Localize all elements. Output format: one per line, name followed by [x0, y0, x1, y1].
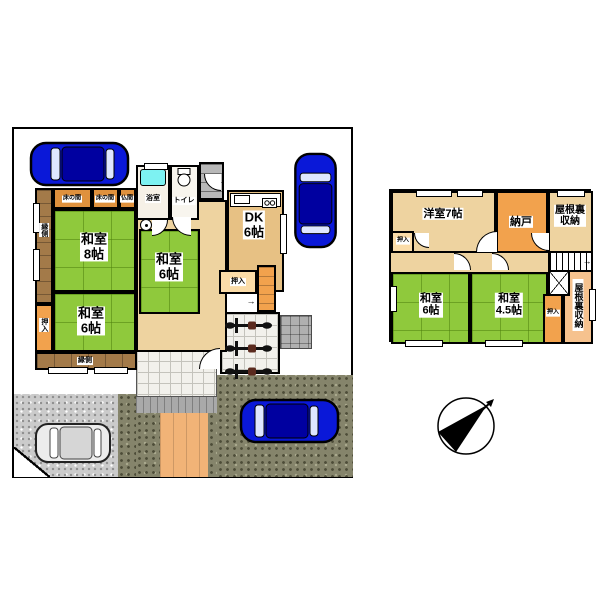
room-label: トイレ	[173, 197, 196, 205]
window	[94, 367, 128, 374]
room-name: 屋根裏	[555, 205, 585, 216]
gravel-dark-strip	[136, 413, 160, 477]
stairs-up-1f	[257, 265, 276, 312]
window	[33, 249, 40, 281]
door-arc	[454, 253, 471, 270]
room-name: 和室	[498, 293, 520, 305]
bicycle-icon	[224, 340, 274, 358]
window	[589, 289, 596, 321]
room-size: 6帖	[244, 224, 264, 239]
room-label: 押入	[546, 310, 560, 317]
gravel-dark-strip	[208, 413, 217, 477]
floor-plan-canvas: 床の間 床の間 仏間 縁側 押入 和室 8帖 和室 6帖 和室 6帖 浴室 トイ…	[0, 0, 600, 600]
car-icon	[34, 421, 112, 465]
window	[48, 367, 88, 374]
room-name: 和室	[81, 231, 107, 246]
stone-steps	[280, 315, 312, 349]
room-label: 押入	[396, 238, 410, 245]
stairs-direction-arrow: →	[582, 256, 593, 266]
room-label: 和室 4.5帖	[495, 293, 523, 318]
room-name: 和室	[78, 305, 104, 320]
room-label: 和室 6帖	[155, 252, 183, 281]
room-label: 納戸	[509, 216, 533, 228]
window	[280, 214, 287, 254]
room-label: 縁側	[39, 223, 49, 237]
door-arc	[492, 253, 509, 270]
window	[457, 190, 483, 197]
room-label: 押入	[230, 278, 246, 286]
car-icon	[239, 395, 340, 447]
room-size: 6帖	[422, 305, 439, 317]
room-label: 和室 6帖	[77, 306, 105, 335]
floor-plan-2f: 洋室7帖 納戸 屋根裏 収納 押入 和室 6帖 和室 4.5帖 押入 屋根裏収納…	[389, 189, 591, 342]
car-icon	[29, 140, 130, 188]
window	[390, 286, 397, 312]
room-label: 浴室	[145, 195, 161, 203]
room-name: 和室	[420, 293, 442, 305]
bicycle-icon	[224, 317, 274, 335]
room-label: 床の間	[95, 196, 115, 203]
room-size: 6帖	[159, 266, 179, 281]
washbasin-icon	[140, 219, 152, 231]
room-label: 和室 6帖	[419, 293, 443, 318]
room-size: 4.5帖	[496, 305, 522, 317]
kitchen-sink-icon	[234, 195, 250, 204]
window	[557, 190, 585, 197]
room-label: 屋根裏収納	[573, 279, 584, 331]
bathtub-icon	[140, 169, 166, 186]
room-label: 和室 8帖	[80, 232, 108, 261]
room-name: 和室	[156, 251, 182, 266]
room-label: 床の間	[62, 196, 82, 203]
site-plan-1f: 床の間 床の間 仏間 縁側 押入 和室 8帖 和室 6帖 和室 6帖 浴室 トイ…	[12, 127, 353, 478]
room-label: 押入	[39, 318, 49, 332]
room-label: 縁側	[77, 357, 93, 365]
bicycle-icon	[224, 363, 274, 381]
gravel-dark-strip	[118, 394, 138, 477]
car-icon	[291, 152, 340, 249]
stairs-direction-arrow: →	[246, 296, 257, 306]
room-label: DK 6帖	[243, 210, 265, 239]
room-label: 仏間	[120, 196, 134, 203]
toilet-icon	[176, 168, 192, 187]
room-size: 6帖	[81, 320, 101, 335]
room-name: DK	[245, 209, 264, 224]
room-name: 収納	[560, 216, 580, 227]
oshiire-2f-right	[543, 294, 563, 344]
stove-icon	[262, 195, 277, 205]
window	[405, 340, 443, 347]
room-label: 洋室7帖	[422, 208, 463, 220]
window	[144, 163, 168, 170]
window	[416, 190, 452, 197]
compass-icon	[430, 392, 502, 460]
closet-x-box	[548, 270, 570, 296]
room-size: 8帖	[84, 246, 104, 261]
step-band	[136, 397, 217, 413]
wood-deck-path	[160, 413, 208, 477]
room-label: 屋根裏 収納	[554, 205, 586, 227]
window	[485, 340, 523, 347]
